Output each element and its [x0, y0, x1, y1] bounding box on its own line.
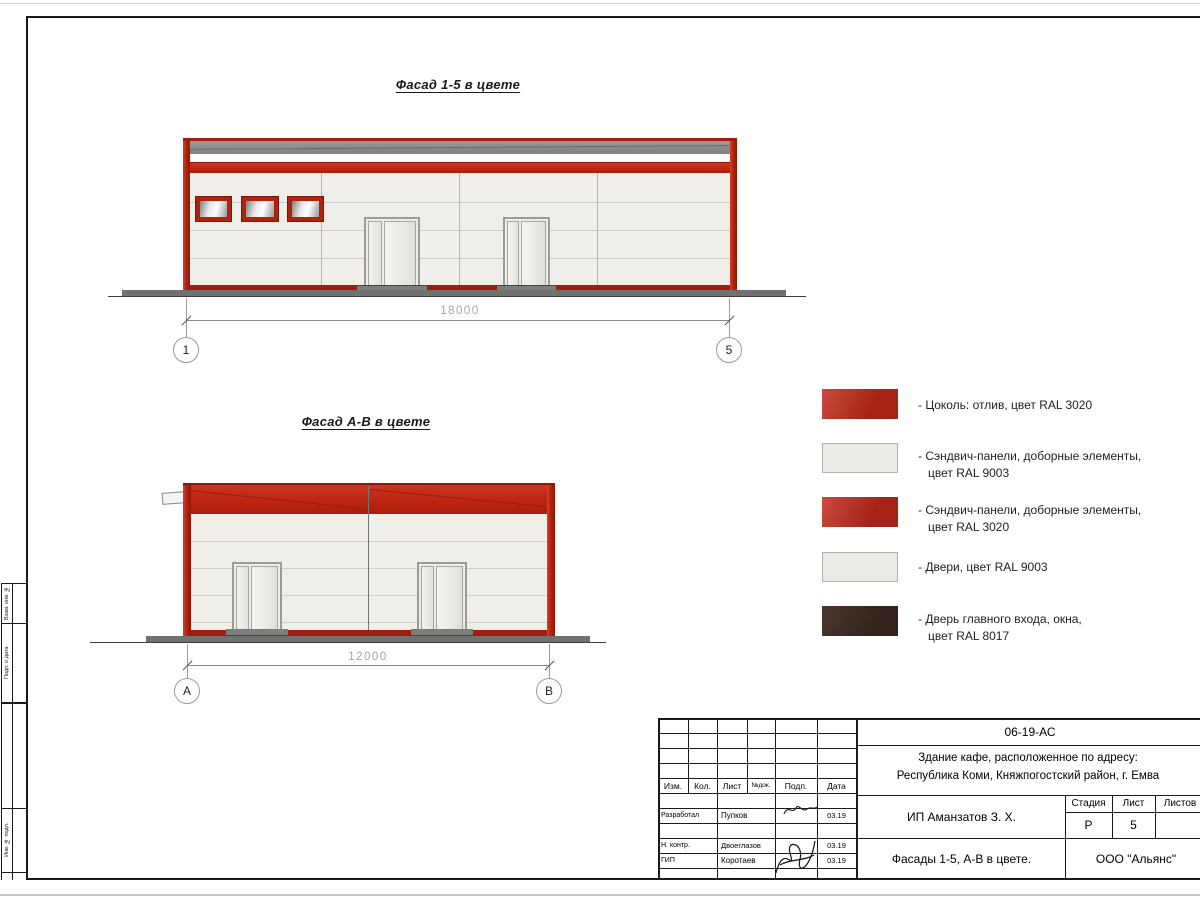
col-header: Кол.: [688, 778, 717, 793]
ground-line: [108, 296, 806, 297]
page-top-edge: [0, 3, 1200, 4]
title-block-line: [856, 838, 1200, 839]
legend-swatch-light: [822, 443, 898, 473]
legend-label: - Цоколь: отлив, цвет RAL 3020: [918, 397, 1092, 413]
fab-corner-joint-line: [368, 486, 369, 630]
facade-a-b-title: Фасад А-В в цвете: [286, 414, 446, 429]
project-address-line1: Здание кафе, расположенное по адресу:: [860, 749, 1196, 767]
door-leaf: [368, 221, 382, 287]
doc-number: 06-19-АС: [858, 719, 1200, 744]
legend-label: - Сэндвич-панели, доборные элементы,: [918, 448, 1141, 464]
axis-label: А: [183, 684, 191, 698]
door: [503, 217, 550, 290]
axis-circle: 1: [173, 337, 199, 363]
door: [364, 217, 420, 290]
door-threshold: [411, 629, 473, 635]
signature-scribble: [782, 801, 818, 819]
legend-swatch-red: [822, 389, 898, 419]
f15-wall-panels: [190, 173, 730, 285]
dimension-label: 12000: [308, 651, 428, 663]
project-address-line2: Республика Коми, Княжпогостский район, г…: [860, 767, 1196, 785]
stage-value: Р: [1065, 813, 1112, 837]
drawing-sheet: Фасад 1-5 в цвете 18000 1 5 Фасад А-В в …: [0, 0, 1200, 900]
dimension-line: [187, 665, 549, 666]
door-leaf: [521, 221, 546, 287]
company-name: ООО "Альянс": [1066, 840, 1200, 878]
margin-strip-line: [12, 583, 13, 880]
title-block-line: [658, 823, 856, 824]
window: [288, 197, 323, 221]
legend-label: - Сэндвич-панели, доборные элементы,: [918, 502, 1141, 518]
col-header: №док.: [747, 778, 775, 793]
client-name: ИП Аманзатов З. Х.: [858, 797, 1065, 837]
sheets-label: Листов: [1155, 796, 1200, 811]
f15-red-band: [183, 162, 737, 173]
sheet-value: 5: [1112, 813, 1155, 837]
date-cell: 03.19: [817, 853, 856, 868]
legend-label-line2: цвет RAL 3020: [928, 519, 1009, 535]
margin-label: Инв. № подл.: [2, 809, 12, 871]
name-cell: Коротаев: [718, 853, 777, 868]
f15-pilaster-right: [730, 141, 737, 290]
panel-line: [191, 541, 547, 542]
facade-1-5-title: Фасад 1-5 в цвете: [378, 77, 538, 92]
col-header: Подп.: [775, 778, 817, 793]
axis-circle: А: [174, 678, 200, 704]
panel-joint-line: [597, 173, 598, 285]
window: [242, 197, 278, 221]
dimension-label: 18000: [400, 305, 520, 317]
f15-white-strip: [190, 154, 730, 162]
legend-swatch-dark: [822, 606, 898, 636]
dimension-line: [186, 320, 730, 321]
f15-pilaster-left: [183, 141, 190, 290]
axis-label: 1: [183, 343, 190, 357]
door-leaf: [421, 566, 434, 633]
title-block-line: [658, 763, 856, 764]
sheet-title: Фасады 1-5, А-В в цвете.: [858, 840, 1065, 878]
legend-label-line2: цвет RAL 8017: [928, 628, 1009, 644]
title-block-line: [658, 868, 856, 869]
name-cell: Пупков: [718, 808, 777, 823]
frame-left-line: [26, 16, 28, 880]
legend-label: - Двери, цвет RAL 9003: [918, 559, 1048, 575]
col-header: Дата: [817, 778, 856, 793]
door-leaf: [236, 566, 249, 633]
panel-joint-line: [321, 173, 322, 285]
door-leaf: [251, 566, 278, 633]
legend-label-line2: цвет RAL 9003: [928, 465, 1009, 481]
door-leaf: [507, 221, 519, 287]
stage-label: Стадия: [1065, 796, 1112, 811]
axis-label: В: [545, 684, 553, 698]
sheet-label: Лист: [1112, 796, 1155, 811]
role-cell: ГИП: [659, 853, 718, 868]
axis-circle: 5: [716, 337, 742, 363]
legend-swatch-light: [822, 552, 898, 582]
door: [232, 562, 282, 636]
window: [196, 197, 231, 221]
title-block-line: [658, 733, 856, 734]
date-cell: 03.19: [817, 838, 856, 853]
col-header: Изм.: [658, 778, 688, 793]
date-cell: 03.19: [817, 808, 856, 823]
title-block-line: [856, 745, 1200, 746]
margin-label: Взам. инв. №: [2, 584, 12, 622]
col-header: Лист: [717, 778, 747, 793]
signature-scribble: [770, 831, 820, 879]
frame-top-line: [26, 16, 1200, 18]
name-cell: Двоеглазов: [718, 838, 777, 853]
title-block-line: [658, 793, 856, 794]
door-leaf: [384, 221, 416, 287]
role-cell: Н. контр.: [659, 838, 718, 853]
panel-line: [190, 230, 730, 231]
door-threshold: [226, 629, 288, 635]
legend-label: - Дверь главного входа, окна,: [918, 611, 1082, 627]
margin-label: Подп. и дата: [2, 624, 12, 701]
door: [417, 562, 467, 636]
ground-line: [90, 642, 606, 643]
legend-swatch-red: [822, 497, 898, 527]
role-cell: Разработал: [659, 808, 718, 823]
axis-circle: В: [536, 678, 562, 704]
margin-strip-line: [1, 872, 27, 873]
axis-label: 5: [726, 343, 733, 357]
margin-strip-line: [1, 702, 27, 704]
door-leaf: [436, 566, 463, 633]
title-block-line: [658, 748, 856, 749]
fab-pilaster-left: [183, 485, 191, 636]
page-bottom-edge: [0, 894, 1200, 896]
fab-pilaster-right: [547, 485, 555, 636]
panel-joint-line: [459, 173, 460, 285]
panel-line: [190, 258, 730, 259]
